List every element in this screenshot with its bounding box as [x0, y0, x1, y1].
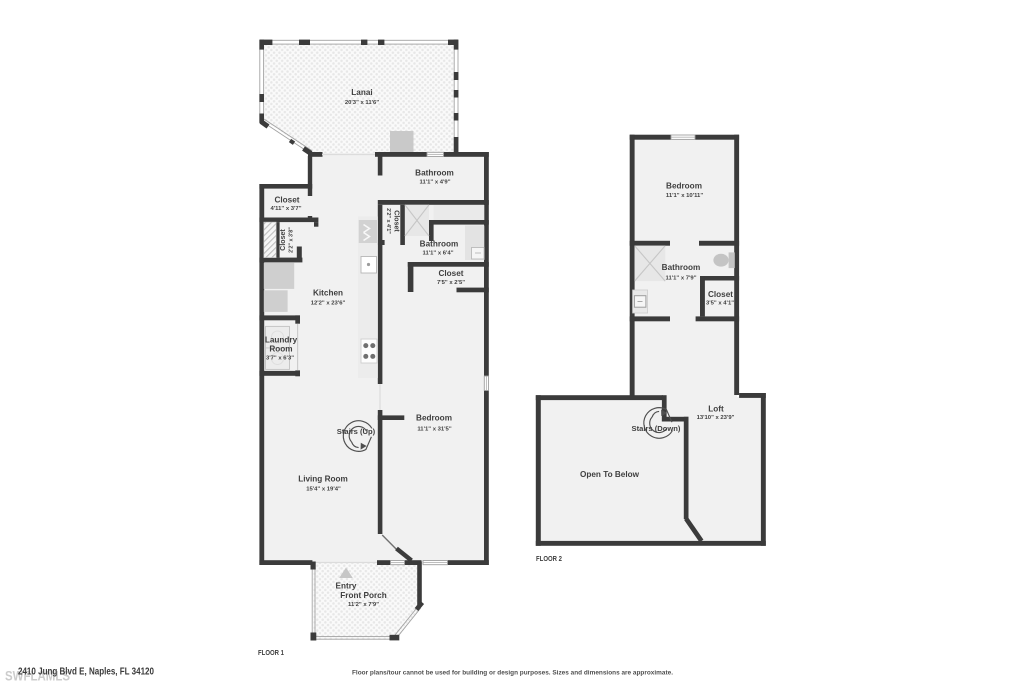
svg-text:3'7" x 6'3": 3'7" x 6'3": [266, 356, 294, 362]
svg-text:12'2" x 23'6": 12'2" x 23'6": [311, 301, 346, 307]
svg-text:Stairs (Up): Stairs (Up): [337, 427, 376, 436]
svg-text:2'2" x 3'8": 2'2" x 3'8": [289, 227, 295, 253]
svg-text:Bathroom: Bathroom: [662, 263, 701, 272]
svg-text:FLOOR 2: FLOOR 2: [536, 556, 562, 563]
svg-text:11'2" x 7'9": 11'2" x 7'9": [348, 602, 379, 608]
svg-text:11'1" x 10'11": 11'1" x 10'11": [666, 193, 703, 199]
svg-text:Floor plans/tour cannot be use: Floor plans/tour cannot be used for buil…: [352, 670, 673, 677]
svg-text:15'4" x 19'4": 15'4" x 19'4": [306, 487, 341, 493]
svg-text:Closet: Closet: [280, 229, 287, 251]
svg-text:11'1" x 6'4": 11'1" x 6'4": [423, 251, 454, 257]
svg-text:Stairs (Down): Stairs (Down): [632, 424, 681, 433]
svg-text:Open To Below: Open To Below: [580, 470, 640, 479]
svg-text:Entry: Entry: [336, 581, 357, 590]
svg-text:Lanai: Lanai: [351, 88, 372, 97]
svg-text:Living Room: Living Room: [298, 475, 348, 484]
svg-text:Closet: Closet: [708, 290, 733, 299]
svg-text:Bedroom: Bedroom: [416, 414, 452, 423]
svg-text:13'10" x 23'9": 13'10" x 23'9": [697, 415, 735, 421]
svg-text:4'11" x 3'7": 4'11" x 3'7": [271, 206, 302, 212]
svg-text:Room: Room: [269, 344, 292, 353]
svg-text:20'3" x 11'6": 20'3" x 11'6": [345, 100, 379, 106]
svg-text:FLOOR 1: FLOOR 1: [258, 650, 284, 657]
svg-text:Kitchen: Kitchen: [313, 288, 343, 297]
svg-text:Laundry: Laundry: [265, 335, 298, 344]
svg-text:2410 Jung Blvd E, Naples, FL 3: 2410 Jung Blvd E, Naples, FL 34120: [18, 667, 154, 678]
svg-text:Closet: Closet: [438, 269, 463, 278]
svg-text:Loft: Loft: [708, 405, 724, 414]
svg-text:Bathroom: Bathroom: [415, 169, 454, 178]
svg-text:Bathroom: Bathroom: [420, 240, 459, 249]
svg-text:7'5" x 2'5": 7'5" x 2'5": [437, 280, 465, 286]
svg-text:3'5" x 4'1": 3'5" x 4'1": [706, 301, 734, 307]
svg-text:Front Porch: Front Porch: [340, 591, 386, 600]
svg-text:Closet: Closet: [274, 196, 299, 205]
svg-text:2'2" x 4'1": 2'2" x 4'1": [385, 208, 391, 234]
svg-text:11'1" x 7'9": 11'1" x 7'9": [666, 275, 697, 281]
svg-text:Bedroom: Bedroom: [666, 182, 702, 191]
svg-text:11'1" x 4'9": 11'1" x 4'9": [420, 180, 451, 186]
svg-text:Closet: Closet: [393, 210, 400, 232]
svg-text:11'1" x 31'5": 11'1" x 31'5": [417, 427, 451, 433]
